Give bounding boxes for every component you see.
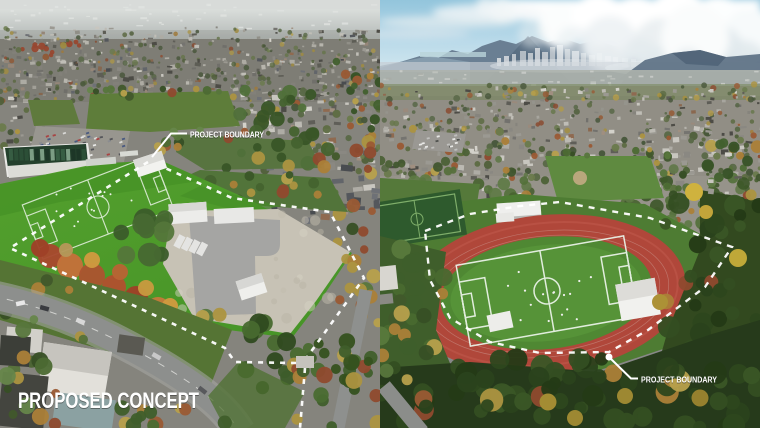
svg-text:PROJECT BOUNDARY: PROJECT BOUNDARY (641, 375, 717, 385)
svg-text:PROPOSED CONCEPT: PROPOSED CONCEPT (18, 388, 199, 413)
svg-text:PROJECT BOUNDARY: PROJECT BOUNDARY (190, 131, 264, 140)
